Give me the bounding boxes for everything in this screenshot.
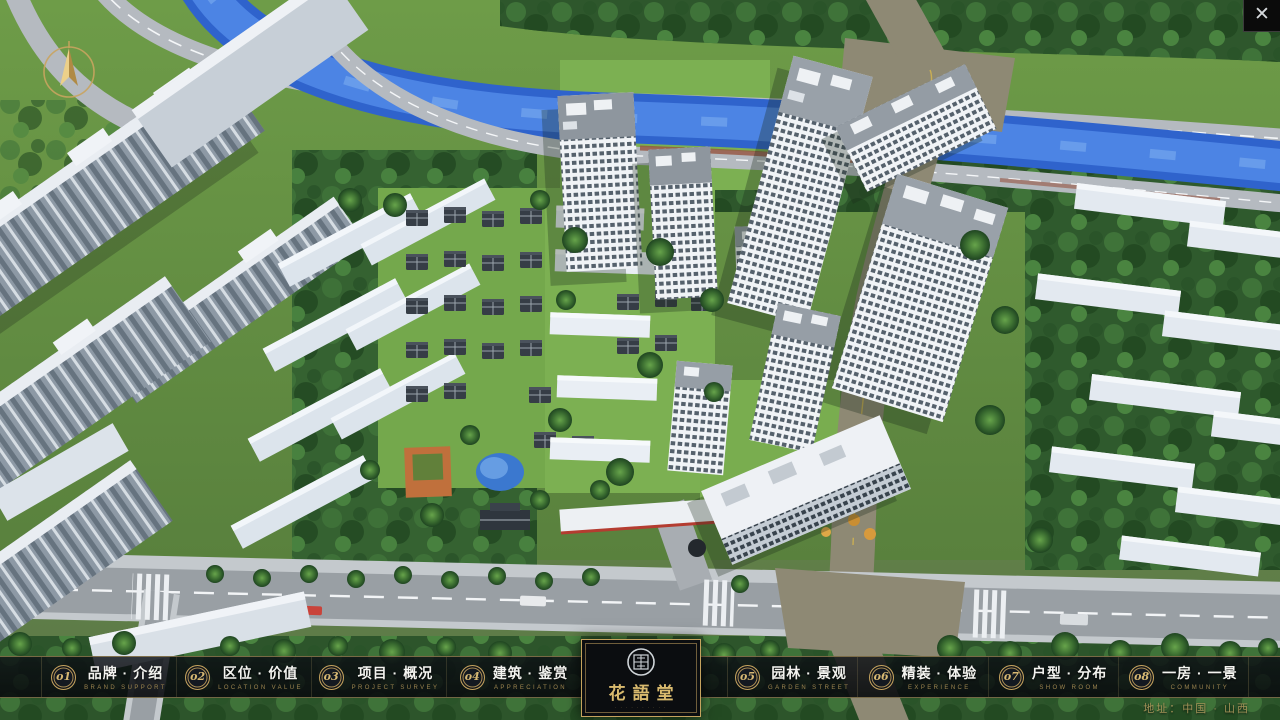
brand-tagline: · · · · · · · · · ·	[615, 706, 667, 710]
project-address: 地址：中国 · 山西	[1143, 700, 1250, 716]
presentation-window: ✕ o1 品牌 · 介绍BRAND SUPPORT o2 区位 · 价值LOCA…	[0, 0, 1280, 720]
nav-item-label: 区位 · 价值	[223, 663, 298, 683]
nav-item-brand-intro[interactable]: o1 品牌 · 介绍BRAND SUPPORT	[42, 657, 176, 697]
nav-item-label: 品牌 · 介绍	[88, 663, 163, 683]
nav-number-badge: o2	[185, 665, 210, 690]
nav-item-label: 建筑 · 鉴赏	[493, 663, 568, 683]
nav-item-caption: SHOW ROOM	[1039, 685, 1100, 691]
nav-item-room-view[interactable]: o8 一房 · 一景COMMUNITY	[1118, 657, 1248, 697]
nav-number-badge: o1	[51, 665, 76, 690]
brand-name: 花語堂	[602, 679, 681, 704]
nav-item-label: 园林 · 景观	[771, 663, 846, 683]
nav-item-location-value[interactable]: o2 区位 · 价值LOCATION VALUE	[176, 657, 311, 697]
nav-number-badge: o4	[460, 665, 485, 690]
nav-item-garden-landscape[interactable]: o5 园林 · 景观GARDEN STREET	[728, 657, 857, 697]
entrance-plaza-circle	[688, 539, 706, 557]
masterplan-3d-view[interactable]	[0, 0, 1280, 720]
nav-item-project-survey[interactable]: o3 项目 · 概况PROJECT SURVEY	[311, 657, 446, 697]
nav-item-caption: COMMUNITY	[1171, 685, 1230, 691]
nav-item-label: 一房 · 一景	[1162, 663, 1237, 683]
brand-seal-icon	[626, 647, 656, 677]
nav-item-decor-experience[interactable]: o6 精装 · 体验EXPERIENCE	[857, 657, 987, 697]
close-button[interactable]: ✕	[1243, 0, 1280, 32]
nav-item-caption: APPRECIATION	[494, 685, 567, 691]
nav-item-caption: LOCATION VALUE	[218, 685, 303, 691]
nav-item-caption: BRAND SUPPORT	[84, 685, 167, 691]
nav-group-left: o1 品牌 · 介绍BRAND SUPPORT o2 区位 · 价值LOCATI…	[41, 657, 582, 697]
nav-item-label: 户型 · 分布	[1032, 663, 1107, 683]
nav-item-unit-distribution[interactable]: o7 户型 · 分布SHOW ROOM	[988, 657, 1118, 697]
nav-group-right: o5 园林 · 景观GARDEN STREET o6 精装 · 体验EXPERI…	[727, 657, 1249, 697]
nav-item-caption: EXPERIENCE	[908, 685, 971, 691]
nav-number-badge: o6	[869, 665, 894, 690]
nav-number-badge: o8	[1129, 665, 1154, 690]
nav-item-caption: GARDEN STREET	[768, 685, 850, 691]
brand-logo-plaque: 花語堂 · · · · · · · · · ·	[581, 639, 701, 717]
nav-number-badge: o7	[999, 665, 1024, 690]
compass-icon	[40, 38, 98, 100]
nav-item-label: 项目 · 概况	[358, 663, 433, 683]
nav-number-badge: o3	[319, 665, 344, 690]
nav-item-architecture[interactable]: o4 建筑 · 鉴赏APPRECIATION	[446, 657, 581, 697]
nav-number-badge: o5	[735, 665, 760, 690]
nav-item-label: 精装 · 体验	[902, 663, 977, 683]
nav-item-caption: PROJECT SURVEY	[352, 685, 440, 691]
